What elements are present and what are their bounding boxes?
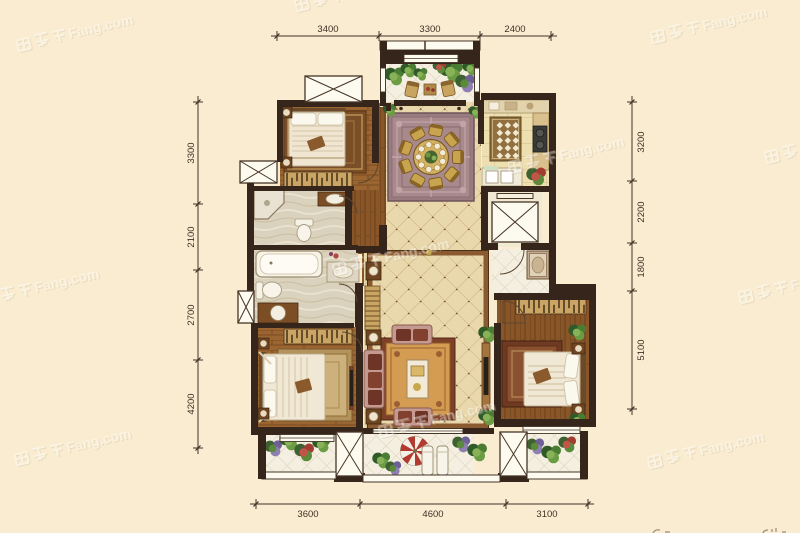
svg-text:1800: 1800 [636, 256, 647, 277]
svg-text:3600: 3600 [297, 509, 318, 520]
svg-text:2100: 2100 [186, 226, 197, 247]
svg-text:2700: 2700 [186, 304, 197, 325]
svg-text:3200: 3200 [636, 131, 647, 152]
svg-text:3300: 3300 [419, 24, 440, 35]
svg-text:3100: 3100 [536, 509, 557, 520]
svg-text:2200: 2200 [636, 201, 647, 222]
svg-text:4200: 4200 [186, 393, 197, 414]
svg-text:5100: 5100 [636, 339, 647, 360]
svg-text:4600: 4600 [422, 509, 443, 520]
svg-text:2400: 2400 [504, 24, 525, 35]
svg-text:3400: 3400 [317, 24, 338, 35]
svg-text:3300: 3300 [186, 142, 197, 163]
